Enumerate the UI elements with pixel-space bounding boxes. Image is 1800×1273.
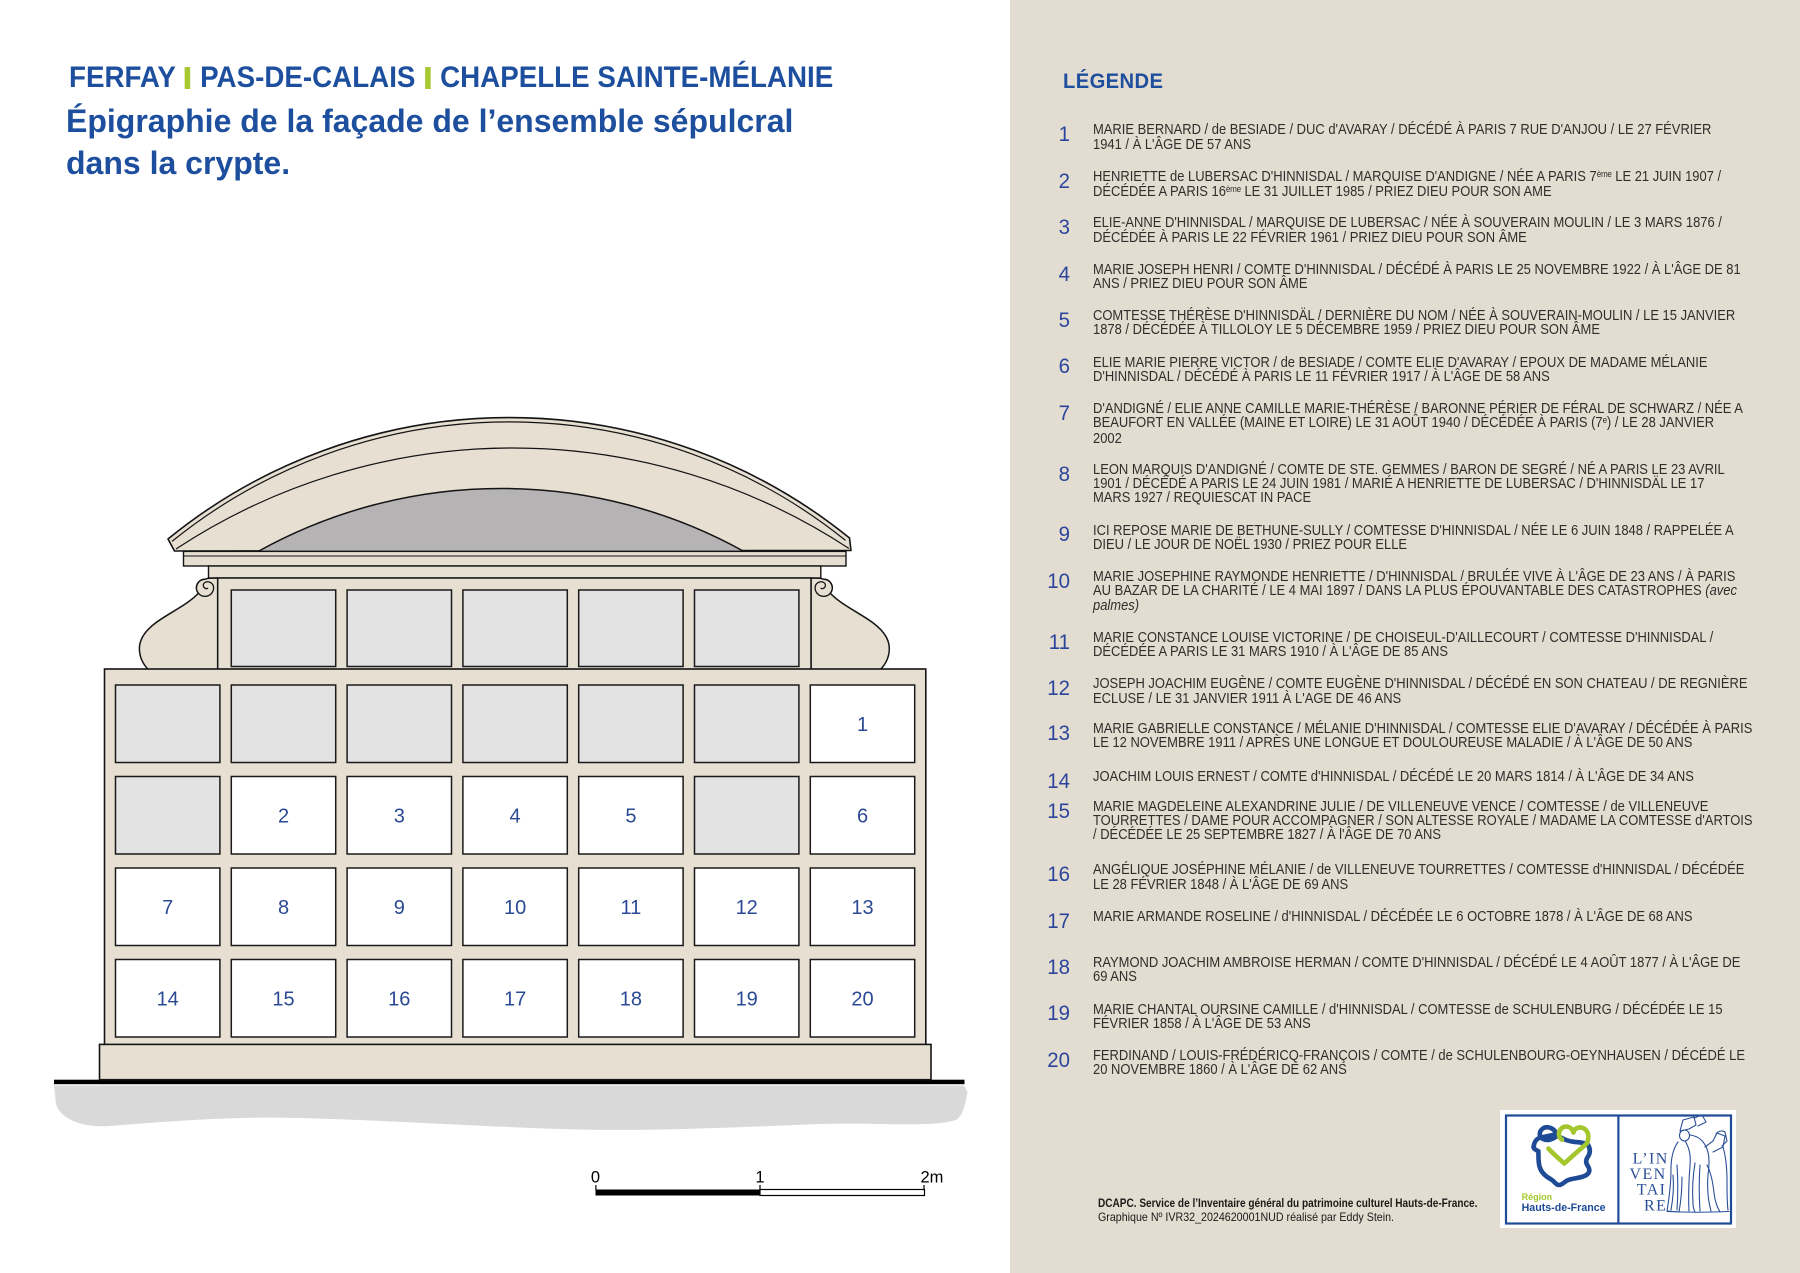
svg-text:18: 18: [620, 988, 642, 1010]
svg-text:2: 2: [278, 805, 289, 827]
svg-text:1: 1: [755, 1169, 764, 1187]
svg-text:16: 16: [388, 988, 410, 1010]
svg-text:14: 14: [157, 988, 179, 1010]
svg-text:6: 6: [857, 805, 868, 827]
svg-text:12: 12: [736, 897, 758, 919]
svg-text:1: 1: [857, 714, 868, 736]
svg-text:Hauts-de-France: Hauts-de-France: [1522, 1202, 1606, 1214]
svg-text:9: 9: [394, 897, 405, 919]
svg-text:20: 20: [851, 988, 873, 1010]
svg-text:13: 13: [851, 897, 873, 919]
svg-text:RE: RE: [1644, 1198, 1667, 1215]
svg-text:5: 5: [625, 805, 636, 827]
svg-text:0: 0: [591, 1169, 600, 1187]
svg-text:15: 15: [272, 988, 294, 1010]
svg-text:10: 10: [504, 897, 526, 919]
svg-text:3: 3: [394, 805, 405, 827]
svg-text:8: 8: [278, 897, 289, 919]
svg-text:17: 17: [504, 988, 526, 1010]
svg-text:11: 11: [621, 897, 642, 919]
svg-text:L’IN: L’IN: [1633, 1151, 1669, 1168]
svg-text:Région: Région: [1522, 1192, 1553, 1202]
svg-text:7: 7: [162, 897, 173, 919]
svg-text:19: 19: [736, 988, 758, 1010]
svg-text:2m: 2m: [921, 1169, 944, 1187]
svg-text:TAI: TAI: [1637, 1182, 1667, 1199]
svg-text:VEN: VEN: [1630, 1166, 1667, 1183]
svg-text:4: 4: [510, 805, 521, 827]
